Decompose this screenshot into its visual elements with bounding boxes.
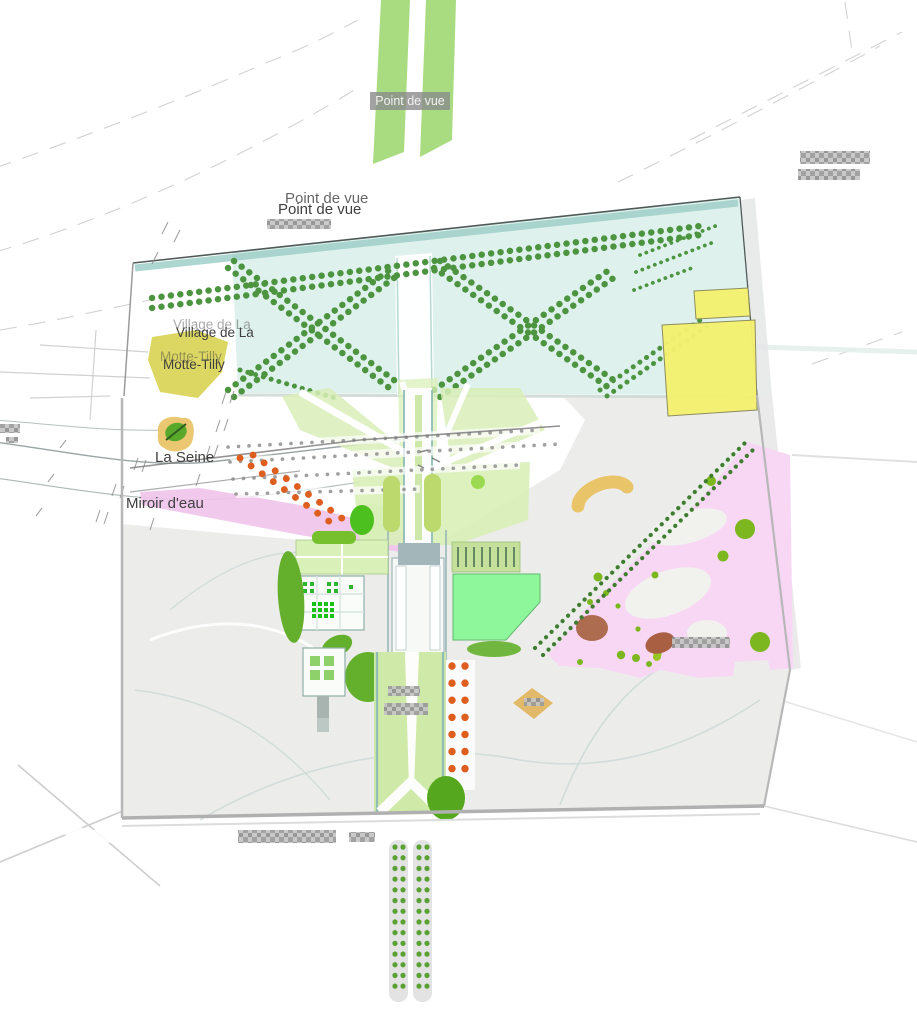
planting-square bbox=[312, 614, 316, 618]
planting-square bbox=[324, 656, 334, 666]
pixelated-text-block bbox=[384, 703, 428, 715]
tree-blob bbox=[467, 641, 521, 657]
planting-square bbox=[318, 614, 322, 618]
tree-marker bbox=[587, 599, 593, 605]
allee-hedge-capsule bbox=[383, 476, 400, 532]
chateau-wing bbox=[396, 566, 406, 650]
village-name-line2: Motte-Tilly bbox=[163, 357, 225, 372]
planting-square bbox=[324, 614, 328, 618]
la-seine-label: La Seine bbox=[155, 449, 214, 466]
planting-square bbox=[334, 582, 338, 586]
tree-marker bbox=[646, 661, 652, 667]
tree-marker bbox=[632, 654, 640, 662]
chateau-wing bbox=[430, 566, 440, 650]
field-parcel-yellow bbox=[694, 288, 750, 319]
garden-stem-path bbox=[317, 696, 329, 718]
planting-square bbox=[318, 608, 322, 612]
planting-square bbox=[330, 608, 334, 612]
tree-marker bbox=[615, 603, 620, 608]
map-canvas: Point de vue Point de vue Point de vue V… bbox=[0, 0, 917, 1024]
planting-square bbox=[330, 602, 334, 606]
pixelated-text-block bbox=[238, 830, 336, 843]
point-de-vue-top-label: Point de vue bbox=[375, 94, 445, 108]
planting-square bbox=[324, 602, 328, 606]
alignment-bed bbox=[443, 660, 475, 790]
planting-square bbox=[327, 589, 331, 593]
planting-square bbox=[310, 656, 320, 666]
planting-square bbox=[349, 585, 353, 589]
planting-square bbox=[312, 602, 316, 606]
chateau-building bbox=[398, 543, 440, 565]
planting-square bbox=[324, 670, 334, 680]
park-master-plan-map: Point de vue Point de vue Point de vue V… bbox=[0, 0, 917, 1024]
garden-stem-foot bbox=[317, 718, 329, 732]
planting-square bbox=[312, 608, 316, 612]
tree-blob bbox=[350, 505, 374, 535]
pixelated-text-block bbox=[388, 686, 420, 696]
pixelated-text-block bbox=[672, 637, 730, 648]
pixelated-text-block bbox=[798, 169, 860, 180]
tree-marker bbox=[617, 651, 625, 659]
planting-square bbox=[310, 582, 314, 586]
tree-blob bbox=[312, 531, 356, 544]
planting-square bbox=[334, 589, 338, 593]
pixelated-text-block bbox=[524, 698, 544, 706]
point-de-vue-label: Point de vue bbox=[278, 201, 361, 218]
planting-square bbox=[310, 670, 320, 680]
miroir-d-eau-label: Miroir d'eau bbox=[126, 495, 204, 512]
planting-square bbox=[324, 608, 328, 612]
tree-marker bbox=[718, 551, 729, 562]
orchard-band bbox=[452, 542, 520, 572]
pixelated-text-block bbox=[349, 832, 375, 842]
planting-square bbox=[310, 589, 314, 593]
tree-marker bbox=[652, 572, 659, 579]
tree-marker bbox=[750, 632, 770, 652]
planting-square bbox=[330, 614, 334, 618]
village-name-line1: Village de La bbox=[176, 325, 254, 340]
pixelated-text-block bbox=[0, 424, 20, 433]
pixelated-text-block bbox=[267, 219, 331, 229]
field-parcel-yellow bbox=[662, 320, 757, 416]
tree-marker bbox=[577, 659, 583, 665]
planting-square bbox=[303, 582, 307, 586]
tree-marker bbox=[635, 626, 640, 631]
tree-blob bbox=[471, 475, 485, 489]
axis-green-strip bbox=[420, 0, 456, 157]
planting-square bbox=[318, 602, 322, 606]
tree-marker bbox=[735, 519, 755, 539]
pixelated-text-block bbox=[6, 437, 18, 443]
allee-hedge-capsule bbox=[424, 474, 441, 532]
pixelated-text-block bbox=[800, 151, 870, 164]
planting-square bbox=[327, 582, 331, 586]
tree-marker bbox=[594, 573, 603, 582]
